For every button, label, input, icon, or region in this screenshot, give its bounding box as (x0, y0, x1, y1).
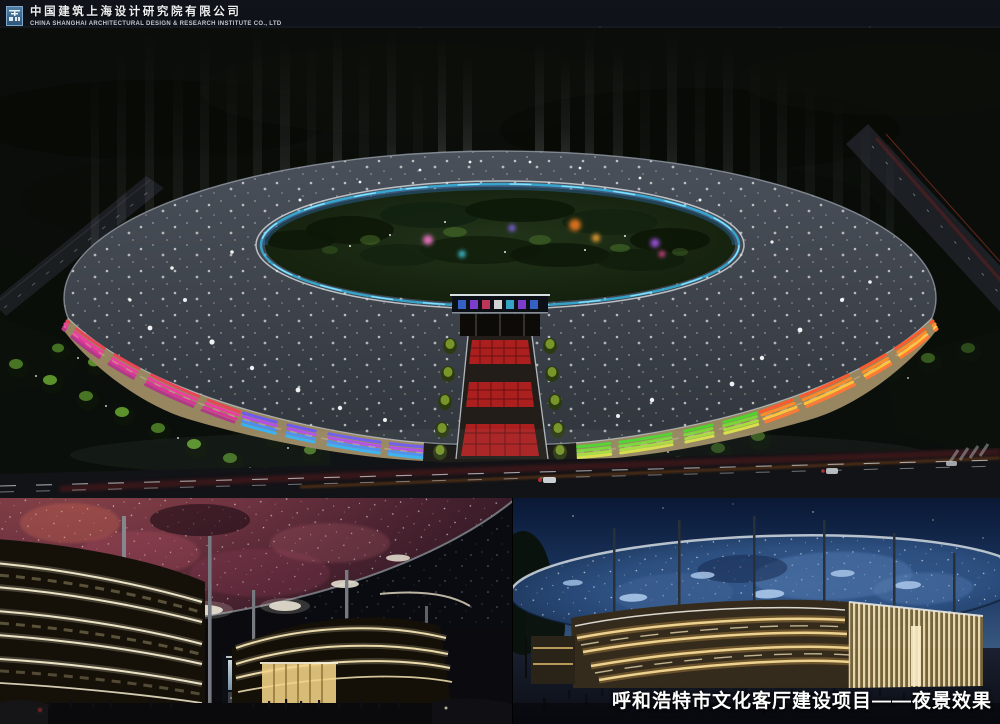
main-aerial-render (0, 0, 1000, 498)
glass-bridge (450, 294, 550, 314)
project-caption: 呼和浩特市文化客厅建设项目——夜景效果 (612, 686, 992, 713)
company-brand: 中国建筑上海设计研究院有限公司 CHINA SHANGHAI ARCHITECT… (6, 6, 281, 28)
glass-hall (849, 602, 983, 688)
company-name-en: CHINA SHANGHAI ARCHITECTURAL DESIGN & RE… (30, 21, 281, 28)
company-name-zh: 中国建筑上海设计研究院有限公司 (30, 6, 281, 19)
canopy-closeup-render (0, 498, 512, 724)
presentation-board: 中国建筑上海设计研究院有限公司 CHINA SHANGHAI ARCHITECT… (0, 0, 1000, 724)
company-logo-icon (6, 6, 23, 26)
